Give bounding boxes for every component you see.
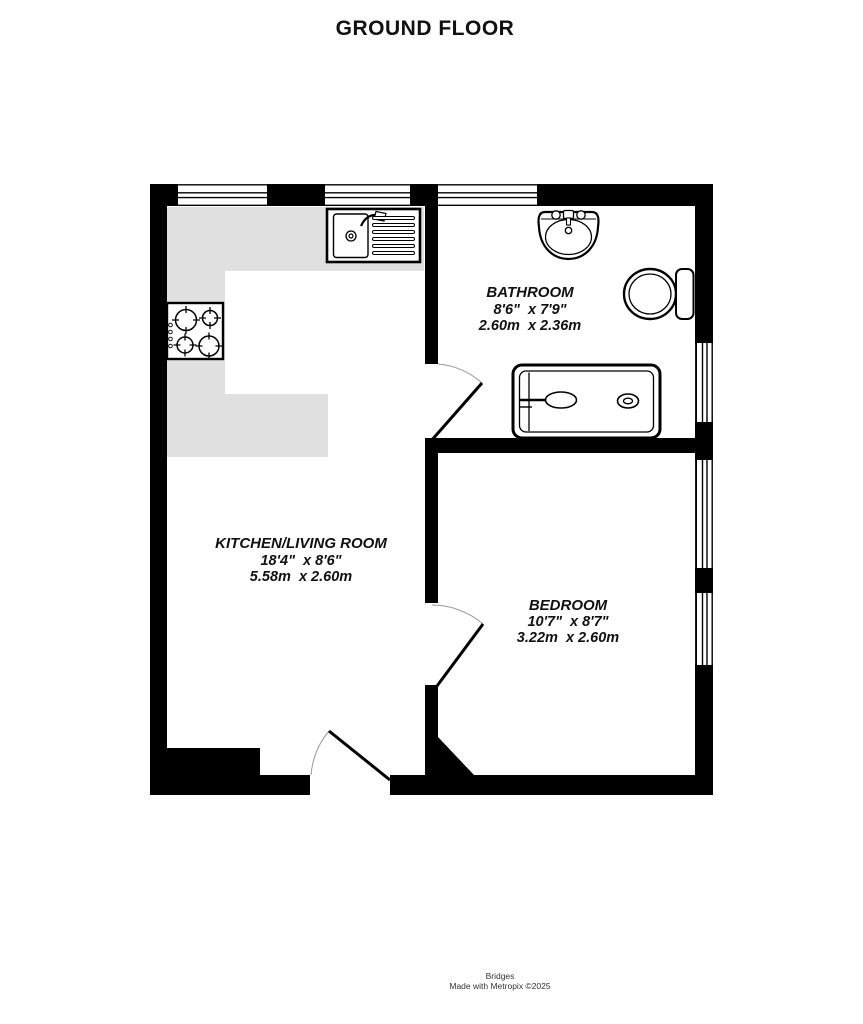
tap — [577, 211, 585, 219]
door-leaf — [437, 624, 483, 686]
toilet-bowl — [624, 269, 676, 319]
windows-right-wall — [696, 343, 714, 665]
windows-top-wall — [178, 184, 537, 206]
footer-brand: Bridges — [486, 971, 515, 981]
wall-corner-splay — [438, 737, 474, 775]
window-bathroom-top — [438, 184, 537, 206]
bathtub-icon — [513, 365, 660, 438]
toilet-cistern — [676, 269, 694, 319]
room-size-metric: 5.58m x 2.60m — [250, 569, 352, 585]
floorplan-canvas: GROUND FLOOR — [0, 0, 863, 1024]
room-name: KITCHEN/LIVING ROOM — [215, 535, 387, 552]
drain — [618, 394, 639, 408]
page-title: GROUND FLOOR — [336, 17, 515, 40]
window-bedroom-right-1 — [696, 460, 714, 568]
floorplan-page: GROUND FLOOR — [0, 0, 863, 1024]
door-swing-arc — [438, 364, 482, 383]
wall-kitchen-divider-lower — [425, 685, 438, 775]
door-swing-arc — [432, 605, 483, 624]
room-size-imperial: 10'7" x 8'7" — [527, 614, 609, 630]
room-name: BEDROOM — [529, 597, 608, 614]
room-label-bathroom: BATHROOM 8'6" x 7'9" 2.60m x 2.36m — [478, 284, 581, 334]
wall-bathroom-bedroom-divider — [425, 438, 695, 453]
window-bedroom-right-2 — [696, 593, 714, 665]
entrance-door — [311, 731, 390, 780]
toilet-icon — [624, 269, 694, 319]
window-kitchen-2 — [325, 184, 410, 206]
wall-kitchen-divider-upper — [425, 184, 438, 364]
room-size-metric: 3.22m x 2.60m — [517, 630, 619, 646]
door-leaf — [329, 731, 390, 780]
door-leaf — [431, 383, 482, 441]
room-label-kitchen-living: KITCHEN/LIVING ROOM 18'4" x 8'6" 5.58m x… — [215, 535, 387, 585]
room-size-metric: 2.60m x 2.36m — [478, 318, 581, 334]
room-name: BATHROOM — [486, 284, 574, 301]
window-bathroom-right — [696, 343, 714, 422]
built-in-unit — [167, 748, 260, 775]
wall-bottom-left-segment — [150, 775, 310, 795]
footer-credit: Bridges Made with Metropix ©2025 — [449, 971, 551, 991]
footer-made-with: Made with Metropix ©2025 — [449, 981, 551, 991]
door-swing-arc — [311, 731, 329, 775]
bedroom-door — [432, 605, 483, 686]
room-size-imperial: 18'4" x 8'6" — [260, 553, 342, 569]
tap — [552, 211, 560, 219]
wall-left — [150, 184, 167, 795]
bathroom-door — [431, 364, 482, 441]
kitchen-sink-icon — [327, 209, 420, 262]
wall-bottom-right-segment — [390, 775, 713, 795]
room-size-imperial: 8'6" x 7'9" — [493, 302, 567, 318]
wall-kitchen-divider-middle — [425, 438, 438, 603]
basin-icon — [539, 211, 599, 260]
window-kitchen-1 — [178, 184, 267, 206]
room-label-bedroom: BEDROOM 10'7" x 8'7" 3.22m x 2.60m — [517, 597, 619, 646]
hob-icon — [167, 303, 223, 360]
